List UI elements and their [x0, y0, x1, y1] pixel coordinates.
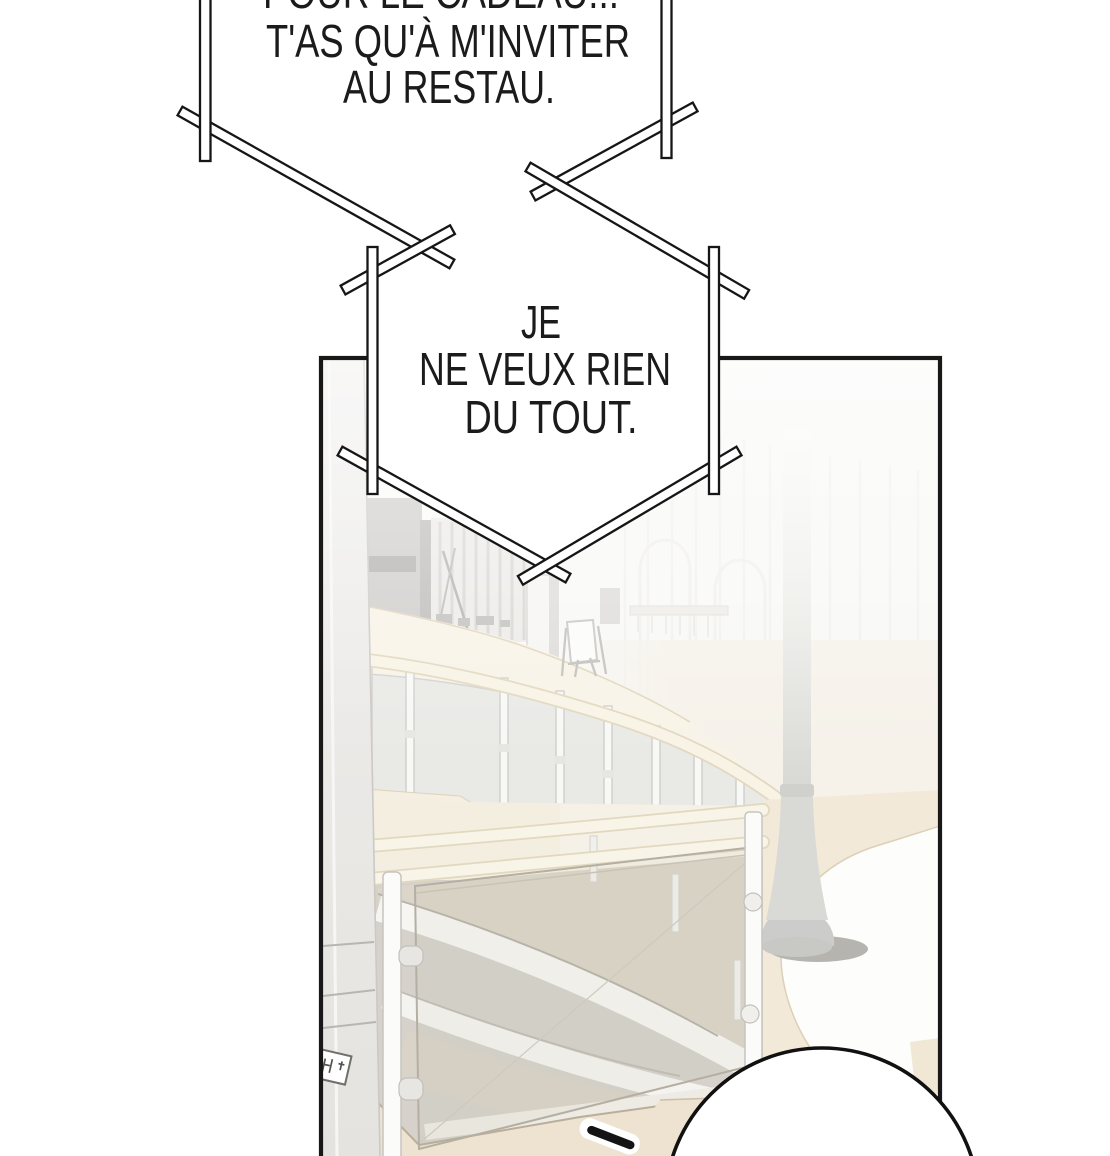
- svg-text:JE: JE: [521, 296, 561, 348]
- svg-text:DU TOUT.: DU TOUT.: [465, 391, 638, 443]
- svg-text:NE VEUX RIEN: NE VEUX RIEN: [419, 343, 671, 395]
- svg-text:AU RESTAU.: AU RESTAU.: [343, 61, 555, 113]
- svg-text:T'AS QU'À M'INVITER: T'AS QU'À M'INVITER: [266, 15, 630, 67]
